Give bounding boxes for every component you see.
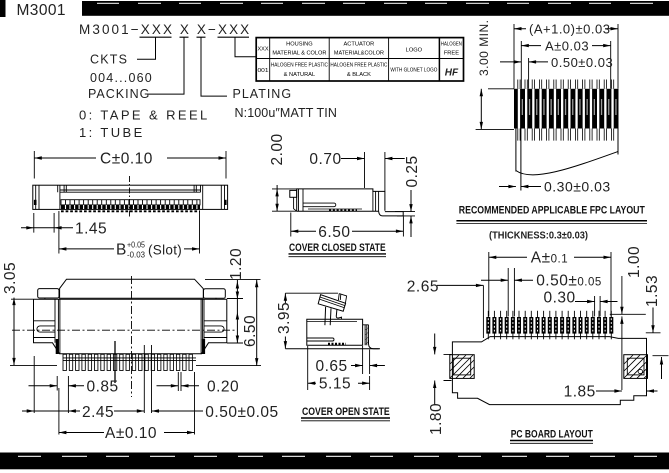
svg-text:0.20: 0.20 xyxy=(207,378,239,395)
svg-text:COVER CLOSED STATE: COVER CLOSED STATE xyxy=(289,242,386,254)
svg-text:1.45: 1.45 xyxy=(75,221,107,238)
svg-text:ACTUATOR: ACTUATOR xyxy=(344,42,375,48)
svg-text:5.15: 5.15 xyxy=(319,376,351,393)
svg-text:0.70: 0.70 xyxy=(309,151,341,168)
svg-text:(A+1.0)±0.03: (A+1.0)±0.03 xyxy=(529,22,610,37)
svg-text:B: B xyxy=(116,242,127,259)
svg-text:2.45: 2.45 xyxy=(82,404,114,421)
svg-text:2.00: 2.00 xyxy=(269,133,286,165)
svg-text:1.85: 1.85 xyxy=(564,384,596,401)
svg-text:A±0.10: A±0.10 xyxy=(105,425,157,442)
svg-text:A±0.03: A±0.03 xyxy=(545,39,589,54)
svg-text:MATERIAL&COLOR: MATERIAL&COLOR xyxy=(334,51,384,57)
svg-text:PLATING: PLATING xyxy=(233,87,293,101)
svg-text:LOGO: LOGO xyxy=(406,48,423,54)
svg-text:2.65: 2.65 xyxy=(407,279,439,296)
svg-text:HALOGEN FREE PLASTIC: HALOGEN FREE PLASTIC xyxy=(271,63,328,69)
svg-text:6.50: 6.50 xyxy=(318,224,350,241)
svg-text:3.95: 3.95 xyxy=(276,302,293,334)
svg-text:(THICKNESS:0.3±0.03): (THICKNESS:0.3±0.03) xyxy=(489,230,588,242)
svg-text:& BLACK: & BLACK xyxy=(347,72,371,78)
svg-text:0.50±0.03: 0.50±0.03 xyxy=(551,55,613,70)
svg-text:0.85: 0.85 xyxy=(87,378,119,395)
svg-text:& NATURAL: & NATURAL xyxy=(284,72,316,78)
svg-text:(Slot): (Slot) xyxy=(148,243,182,258)
svg-text:MATERIAL & COLOR: MATERIAL & COLOR xyxy=(272,51,326,57)
svg-text:0.25: 0.25 xyxy=(404,155,421,187)
svg-text:1: TUBE: 1: TUBE xyxy=(79,125,145,140)
svg-text:PC BOARD LAYOUT: PC BOARD LAYOUT xyxy=(511,429,593,441)
svg-text:1.20: 1.20 xyxy=(228,248,245,280)
svg-text:HALOGEN FREE PLASTIC: HALOGEN FREE PLASTIC xyxy=(330,63,387,69)
svg-text:-0.03: -0.03 xyxy=(127,250,145,260)
svg-text:HF: HF xyxy=(445,68,459,79)
svg-text:+0.05: +0.05 xyxy=(127,240,145,250)
svg-text:HALOGEN: HALOGEN xyxy=(441,42,462,48)
svg-text:M3001: M3001 xyxy=(17,2,66,19)
svg-text:001: 001 xyxy=(258,68,269,74)
svg-text:HOUSING: HOUSING xyxy=(286,42,313,48)
svg-text:0.50±0.05: 0.50±0.05 xyxy=(205,404,278,421)
svg-text:WITH GLONET LOGO: WITH GLONET LOGO xyxy=(390,68,437,74)
svg-text:1.53: 1.53 xyxy=(644,275,661,307)
svg-text:0.65: 0.65 xyxy=(316,358,348,375)
svg-text:0.30±0.03: 0.30±0.03 xyxy=(544,179,611,195)
svg-text:N:100u″MATT TIN: N:100u″MATT TIN xyxy=(235,106,337,120)
svg-text:XXX: XXX xyxy=(258,47,269,53)
svg-text:1.00: 1.00 xyxy=(626,246,643,278)
svg-text:3.00 MIN.: 3.00 MIN. xyxy=(477,19,491,76)
svg-text:RECOMMENDED APPLICABLE FPC LAY: RECOMMENDED APPLICABLE FPC LAYOUT xyxy=(459,205,645,217)
svg-text:C±0.10: C±0.10 xyxy=(100,151,153,168)
svg-text:M3001−XXX X X−XXX: M3001−XXX X X−XXX xyxy=(79,22,251,37)
svg-text:0.30: 0.30 xyxy=(544,289,576,306)
svg-text:0: TAPE & REEL: 0: TAPE & REEL xyxy=(79,108,210,123)
svg-text:3.05: 3.05 xyxy=(2,262,19,294)
svg-text:004...060: 004...060 xyxy=(90,71,153,85)
svg-text:FREE: FREE xyxy=(444,51,459,57)
svg-text:CKTS: CKTS xyxy=(90,53,128,67)
svg-text:PACKING: PACKING xyxy=(88,87,150,101)
svg-text:1.80: 1.80 xyxy=(428,403,445,435)
svg-text:COVER OPEN STATE: COVER OPEN STATE xyxy=(302,406,390,418)
